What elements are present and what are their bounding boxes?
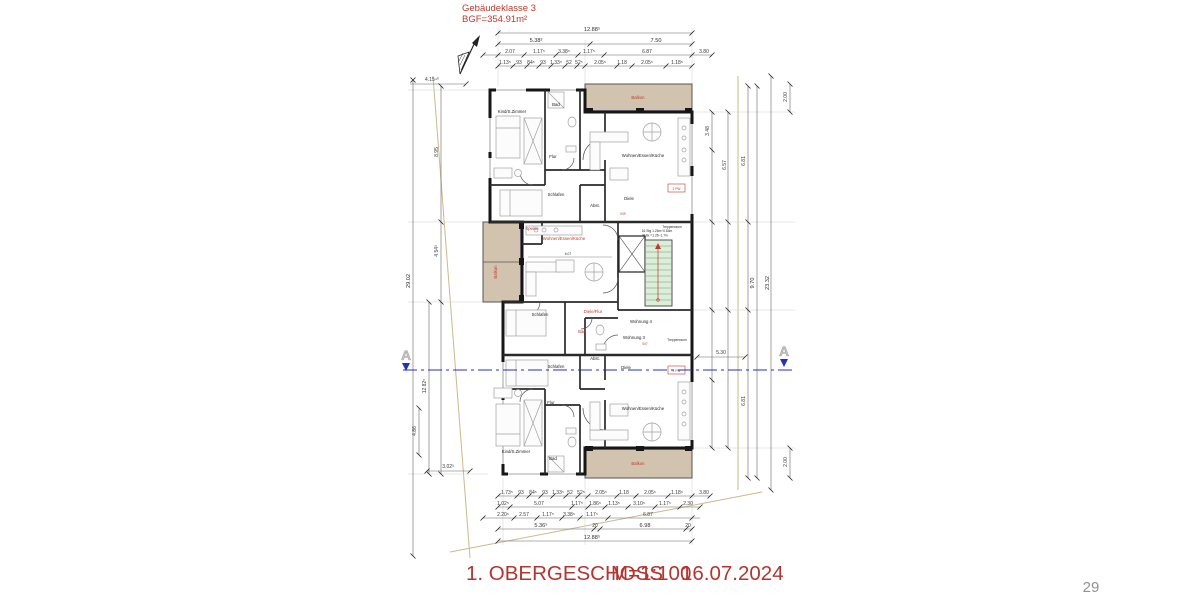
dim-right-530: 5.30: [716, 350, 726, 356]
sheet-title: 1. OBERGESCHOSS M=1:100 16.07.2024: [466, 562, 784, 585]
dim-bot-r2-3: 1.86⁵: [589, 501, 601, 507]
stair-note-2: St.Br.=1.26–1.7m: [642, 234, 668, 238]
label-schlafen-top: Schlafen: [548, 192, 565, 197]
section-label-left: A: [401, 347, 411, 363]
label-speise: Speise: [525, 226, 539, 231]
dim-top-r4-4: 1.33⁵: [550, 60, 562, 66]
dim-bot-r3-0: 2.20⁵: [497, 512, 509, 518]
tag-door-bottom: 007: [642, 342, 648, 346]
dim-bot-r2-4: 1.13⁵: [608, 501, 620, 507]
dim-bot-r3-4: 1.17⁵: [586, 512, 598, 518]
header-building-class: Gebäudeklasse 3: [462, 3, 536, 14]
label-flur-bottom: Flur: [547, 400, 555, 405]
dim-bot-r1-8: 1.18: [619, 490, 629, 496]
wek-inner-dim: 6.07: [565, 252, 572, 256]
label-abst-bottom: Abst.: [590, 356, 600, 361]
dim-top-r4-10: 1.18⁵: [671, 60, 683, 66]
dim-right-200-bottom: 2.00: [783, 457, 789, 467]
label-wek-bottom: Wohnen/Essen/Küche: [622, 406, 665, 411]
dim-top-overall: 12.88⁵: [584, 26, 600, 33]
dim-bot-r3-1: 2.57: [519, 512, 529, 518]
dim-right-348: 3.48: [705, 126, 711, 136]
label-balkon-left: Balkon: [493, 265, 498, 279]
dim-top-r3-0: 2.07: [505, 49, 515, 55]
label-abst-top: Abst.: [590, 203, 600, 208]
dim-top-r4-6: 52⁵: [575, 60, 583, 66]
dim-top-r4-9: 2.05⁵: [641, 60, 653, 66]
dim-top-r4-8: 1.18: [617, 60, 627, 66]
dim-left-415: 4.15⁴⁰: [425, 77, 439, 83]
dim-right-200-top: 2.00: [783, 92, 789, 102]
dim-right-overall: 23.32: [765, 276, 771, 290]
label-wohnung-3: Wohnung 3: [623, 335, 646, 340]
section-label-right: A: [779, 343, 789, 359]
dim-left-895: 8.95: [434, 147, 440, 157]
dim-bot-r1-7: 2.05⁵: [595, 490, 607, 496]
dim-right-970: 9.70: [750, 278, 756, 289]
label-bad-mid: Bad: [578, 329, 586, 334]
dim-top-r4-0: 1.13⁵: [499, 60, 511, 66]
section-arrow-right: [780, 359, 788, 367]
label-wohnung-4: Wohnung 4: [630, 319, 653, 324]
label-kind-top: Kind/S.Zimmer: [498, 109, 527, 114]
dim-bot-r2-7: 2.30: [683, 501, 693, 507]
dim-bot-r3-5: 6.87: [643, 512, 653, 518]
dim-bot-overall: 12.88⁵: [584, 534, 600, 541]
title-date: 16.07.2024: [681, 562, 784, 585]
dim-bot-r4-0: 5.36⁵: [534, 522, 547, 529]
label-diele-bottom: Diele: [621, 365, 631, 370]
label-schlafen-bottom: Schlafen: [548, 364, 565, 369]
label-diele-flur-mid: Diele/Flur: [584, 309, 603, 314]
stair-run: [645, 240, 672, 306]
tag-door-top: 009: [620, 212, 626, 216]
stair-note-1: 16 Stg 1.26m÷0.84m: [642, 229, 673, 233]
tag-pw-top: 2 PW: [672, 187, 681, 191]
dim-right-681-top: 6.81: [741, 156, 747, 166]
dim-left-302: 3.02³: [442, 464, 454, 470]
dim-bot-r2-0: 1.02⁵: [497, 501, 509, 507]
dim-left-486: 4.86: [412, 426, 418, 436]
dim-bot-r1-10: 1.18⁵: [671, 490, 683, 496]
label-balkon-top: Balkon: [631, 95, 645, 100]
label-diele-top: Diele: [624, 196, 634, 201]
dim-bot-r2-5: 3.10⁵: [633, 501, 645, 507]
dim-top-r3-5: 3.80: [699, 49, 709, 55]
label-bad-bottom: Bad: [549, 456, 557, 461]
dim-left-overall: 29.02: [406, 274, 412, 288]
floorplan-sheet: 12.88⁵ 5.38³ 7.50 2.07 1.17⁵ 3.38⁵ 1.17⁵…: [0, 0, 1200, 600]
stair-core: [619, 236, 672, 306]
label-wek-top: Wohnen/Essen/Küche: [622, 153, 665, 158]
dim-right-681-bottom: 6.81: [741, 396, 747, 406]
dim-bot-r4-1: 20: [592, 523, 598, 529]
label-wek-mid: Wohnen/Essen/Küche: [543, 236, 586, 241]
dim-bot-r2-2: 1.17⁵: [571, 501, 583, 507]
dim-bot-r4-3: 20: [685, 523, 691, 529]
dim-top-r3-1: 1.17⁵: [533, 49, 545, 55]
label-schlafen-mid: Schlafen: [532, 312, 549, 317]
dim-top-r4-3: 93: [540, 60, 546, 66]
dim-top-r3-3: 1.17⁵: [583, 49, 595, 55]
title-scale: M=1:100: [611, 562, 691, 585]
dim-left-454: 4.54³: [434, 245, 440, 257]
dim-bot-r1-11: 3.80: [699, 490, 709, 496]
dim-bot-r1-5: 52: [567, 490, 573, 496]
dim-top-r3-4: 6.87: [642, 49, 652, 55]
dim-bot-r1-4: 1.33⁵: [552, 490, 564, 496]
dim-top-r4-5: 52: [566, 60, 572, 66]
page-number: 29: [1083, 579, 1100, 596]
dim-left-1282: 12.82⁵: [422, 379, 428, 394]
north-arrow-icon: [458, 35, 480, 74]
label-flur-top: Flur: [549, 154, 557, 159]
label-bad-top: Bad: [552, 102, 560, 107]
dim-top-r4-1: 93: [516, 60, 522, 66]
dim-bot-r1-1: 93: [518, 490, 524, 496]
label-treppenraum-bottom: Treppenraum: [667, 338, 687, 342]
dim-top-r3-2: 3.38⁵: [558, 49, 570, 55]
dim-right-657: 6.57: [722, 160, 728, 170]
dim-bot-r1-9: 2.05⁵: [644, 490, 656, 496]
dim-top-right-span: 7.50: [651, 38, 662, 44]
dim-bot-r1-2: 84⁵: [529, 490, 537, 496]
dim-bot-r4-2: 6.98: [640, 523, 651, 529]
header-bgf: BGF=354.91m²: [462, 14, 527, 25]
dim-top-left-span: 5.38³: [530, 38, 543, 44]
dim-bot-r2-1: 5.07: [534, 501, 544, 507]
dim-top-r4-2: 84⁵: [527, 60, 535, 66]
label-balkon-bottom: Balkon: [631, 461, 645, 466]
dim-top-r4-7: 2.05⁵: [594, 60, 606, 66]
dim-bot-r1-0: 1.73⁵: [501, 490, 513, 496]
dim-bot-r3-3: 3.38⁵: [563, 512, 575, 518]
dim-bot-r3-2: 1.17⁵: [542, 512, 554, 518]
dim-bot-r1-6: 52⁵: [577, 490, 585, 496]
label-kind-bottom: Kind/S.Zimmer: [502, 449, 531, 454]
dim-bot-r2-6: 1.17⁵: [659, 501, 671, 507]
dim-bot-r1-3: 93: [542, 490, 548, 496]
